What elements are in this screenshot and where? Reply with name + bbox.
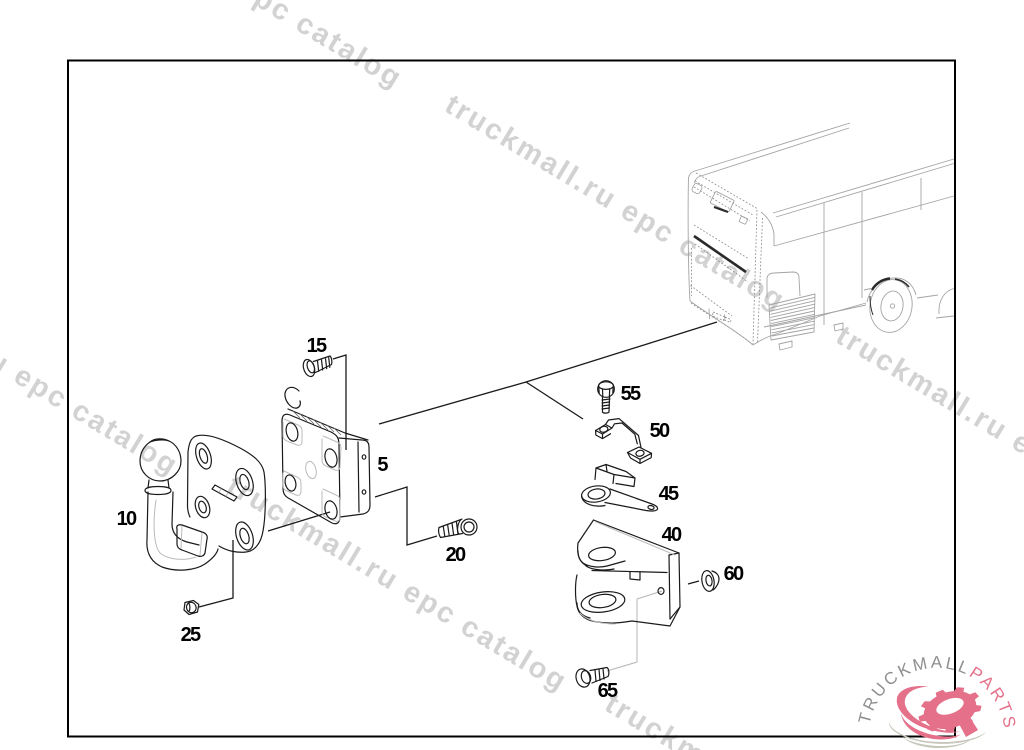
svg-text:10: 10 [117, 508, 137, 530]
svg-text:truckmall.ru epc catalog: truckmall.ru epc catalog [221, 470, 573, 699]
svg-text:20: 20 [446, 544, 466, 566]
svg-text:25: 25 [181, 624, 201, 646]
svg-text:45: 45 [659, 483, 679, 505]
svg-text:55: 55 [621, 383, 641, 405]
svg-text:40: 40 [662, 524, 682, 546]
svg-text:50: 50 [650, 420, 670, 442]
svg-text:truckmall.ru epc catalog: truckmall.ru epc catalog [439, 89, 791, 318]
svg-text:60: 60 [724, 563, 744, 585]
svg-text:truckmall.ru epc catalog: truckmall.ru epc catalog [830, 320, 1024, 549]
svg-text:65: 65 [598, 680, 618, 702]
svg-text:truckmall.ru epc catalog: truckmall.ru epc catalog [56, 0, 408, 95]
svg-text:5: 5 [377, 454, 388, 476]
svg-text:truckmall.ru epc catalog: truckmall.ru epc catalog [0, 254, 184, 483]
svg-text:15: 15 [307, 335, 327, 357]
